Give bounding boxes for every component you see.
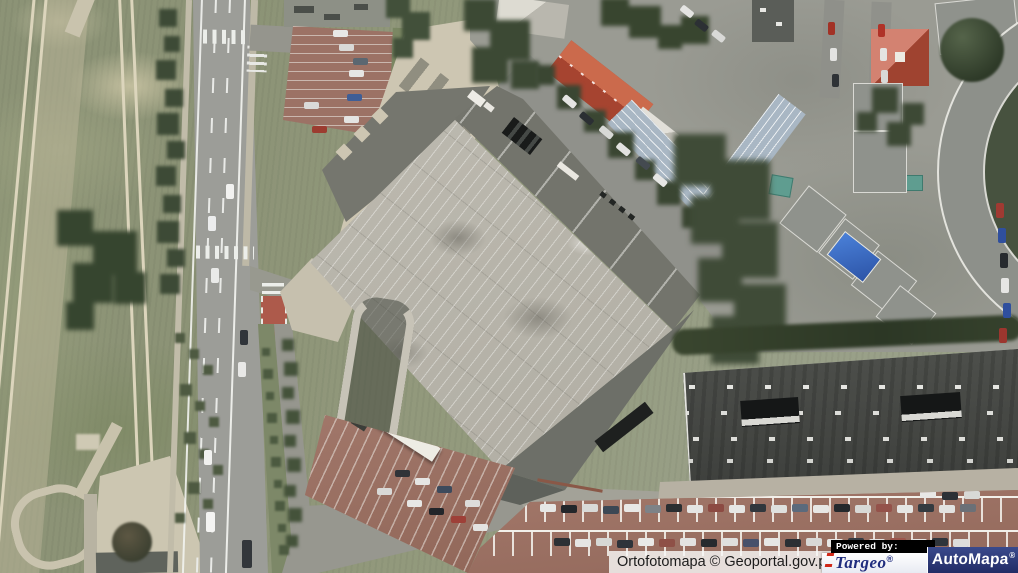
map-canvas[interactable]: Ortofotomapa © Geoportal.gov.pl Powered …: [0, 0, 1018, 573]
automapa-logo[interactable]: AutoMapa ®: [927, 547, 1018, 573]
van: [206, 512, 215, 532]
registered-trademark-icon: ®: [1009, 551, 1015, 560]
track-switch: [76, 434, 100, 450]
car: [238, 362, 246, 377]
flat-roof-building: [752, 0, 794, 42]
gazebo-roof: [905, 175, 923, 191]
roof-vent: [760, 8, 766, 12]
car: [208, 216, 216, 231]
targeo-red-mark-icon: [825, 553, 834, 567]
map-attribution: Ortofotomapa © Geoportal.gov.pl: [609, 551, 838, 573]
container: [294, 6, 314, 13]
large-tree: [940, 18, 1004, 82]
parked-cars: [996, 203, 1004, 218]
powered-by-label: Powered by:: [831, 540, 935, 553]
targeo-logo-text: Targeo: [835, 553, 887, 573]
parked-cars: [878, 24, 885, 37]
container: [324, 14, 340, 20]
container: [354, 4, 368, 10]
car: [204, 450, 212, 465]
fenced-yard: [284, 0, 390, 27]
roof-vent: [776, 22, 782, 26]
car: [226, 184, 234, 199]
automapa-logo-text: AutoMapa: [931, 551, 1009, 569]
targeo-logo[interactable]: Targeo ®: [822, 553, 927, 573]
warehouse-roof: [683, 349, 1018, 488]
parked-cars: [333, 30, 348, 37]
parked-cars: [828, 22, 835, 35]
car: [211, 268, 219, 283]
rooftop-unit: [740, 397, 800, 427]
rooftop-unit: [900, 392, 962, 422]
apartment-block: [854, 132, 906, 192]
registered-trademark-icon: ®: [887, 554, 894, 564]
parked-cars: [395, 470, 410, 477]
roof-cupola: [895, 52, 905, 62]
gazebo-roof: [768, 174, 793, 198]
parked-cars: [540, 504, 556, 512]
apartment-block: [854, 84, 902, 130]
parked-cars: [554, 538, 570, 546]
red-hip-roof-building: [871, 29, 929, 86]
bus: [242, 540, 252, 568]
pedestrian-crossing: [196, 245, 254, 259]
bush: [112, 522, 152, 562]
car: [240, 330, 248, 345]
